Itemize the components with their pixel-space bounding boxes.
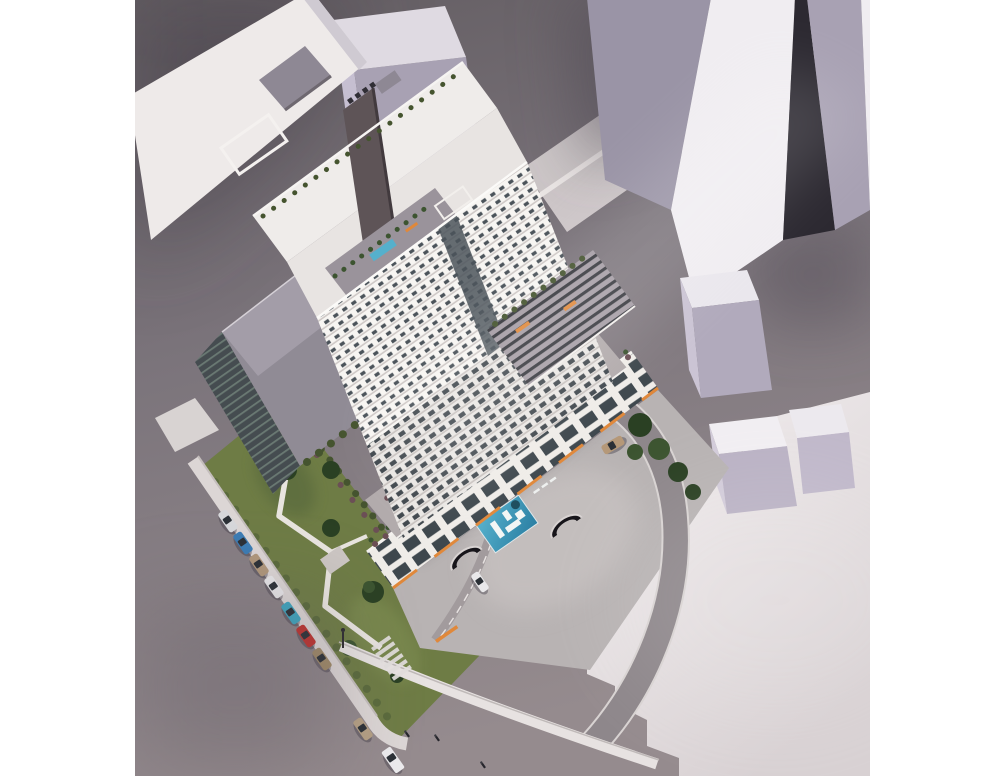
render-stage — [135, 0, 870, 776]
tree-highlight — [363, 581, 375, 593]
plaza-box2-roof — [789, 404, 849, 438]
aerial-rendering — [135, 0, 870, 776]
tree — [668, 462, 688, 482]
screenshot-page — [0, 0, 994, 776]
midright-box-right — [692, 300, 772, 398]
tree — [627, 444, 643, 460]
right-white-margin — [870, 0, 994, 776]
street-pole-head — [341, 628, 345, 632]
tree — [322, 461, 340, 479]
tree — [628, 413, 652, 437]
tree — [322, 519, 340, 537]
left-white-margin — [0, 0, 135, 776]
tree — [648, 438, 670, 460]
bottomleft-shade — [135, 600, 335, 776]
